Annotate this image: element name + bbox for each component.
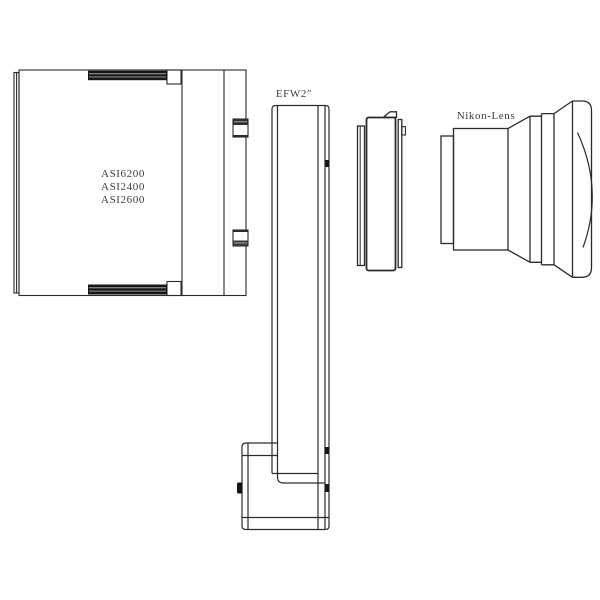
lens-front-rim	[573, 101, 592, 277]
camera-top-step	[167, 70, 181, 84]
technical-diagram: ASI6200 ASI2400 ASI2600	[0, 0, 600, 600]
lens-mount	[441, 136, 454, 244]
diagram-page: ASI6200 ASI2400 ASI2600	[0, 0, 600, 600]
efw-screw-tick-1	[325, 160, 329, 167]
lens-label: Nikon-Lens	[457, 110, 516, 122]
lens-band-1	[530, 114, 542, 265]
adapter-right-strip	[398, 120, 402, 268]
adapter-flange	[358, 126, 365, 266]
adapter-body	[367, 118, 396, 271]
lens-drawing	[441, 101, 592, 277]
lens-band-2	[542, 114, 555, 265]
camera-upper-connector	[233, 119, 248, 137]
lens-bell	[554, 101, 573, 277]
efw-thumbscrew	[237, 483, 243, 494]
camera-lower-connector	[233, 230, 248, 246]
filter-wheel-label: EFW2″	[276, 88, 312, 100]
adapter-top-clip	[384, 112, 397, 118]
efw-screw-tick-2	[325, 447, 329, 454]
camera-top-hatch-bar	[88, 71, 167, 81]
camera-model-line-2: ASI2400	[101, 181, 145, 193]
adapter-right-nub	[402, 127, 406, 135]
lens-rear-barrel	[454, 129, 509, 251]
efw-screw-tick-3	[325, 484, 329, 492]
camera-bottom-hatch-bar	[88, 285, 167, 295]
adapter-drawing	[358, 112, 406, 271]
camera-model-line-1: ASI6200	[101, 168, 145, 180]
camera-model-line-3: ASI2600	[101, 194, 145, 206]
camera-bottom-step	[167, 282, 181, 296]
lens-cone	[508, 116, 530, 262]
efw-slab-outline	[272, 106, 329, 530]
camera-model-label: ASI6200 ASI2400 ASI2600	[101, 168, 145, 206]
lens-glass-curve	[578, 133, 593, 248]
filter-wheel-drawing	[237, 106, 329, 530]
